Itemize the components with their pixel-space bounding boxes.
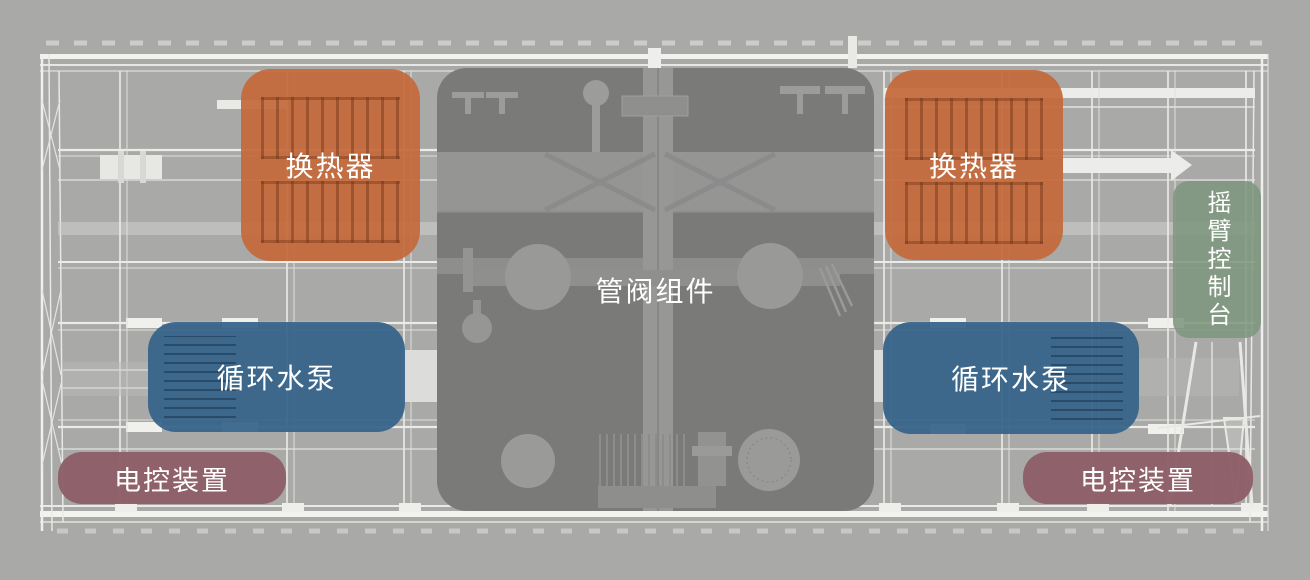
heat-exchanger-left-region: 换热器 [241,69,420,261]
rocker-arm-console-region: 摇臂控制台 [1173,181,1261,338]
electric-control-right-label: 电控装置 [1080,459,1196,498]
electric-control-left-region: 电控装置 [58,452,286,504]
heat-exchanger-right-label: 换热器 [929,145,1019,185]
circulating-pump-right-region: 循环水泵 [883,322,1139,434]
heat-exchanger-left-label: 换热器 [285,145,375,185]
electric-control-left-label: 电控装置 [114,459,230,498]
electric-control-right-region: 电控装置 [1023,452,1253,504]
equipment-layout-diagram: 管阀组件 换热器 换热器 循环水泵 循环水泵 电控装置 电控装置 摇臂控制台 [0,0,1310,580]
pipe-valve-assembly-region: 管阀组件 [437,68,874,511]
circulating-pump-left-region: 循环水泵 [148,322,405,432]
heat-exchanger-right-region: 换热器 [885,70,1063,260]
circulating-pump-right-label: 循环水泵 [951,358,1071,398]
circulating-pump-left-label: 循环水泵 [216,357,336,397]
pipe-valve-assembly-label: 管阀组件 [595,270,715,310]
rocker-arm-console-label: 摇臂控制台 [1205,190,1229,330]
